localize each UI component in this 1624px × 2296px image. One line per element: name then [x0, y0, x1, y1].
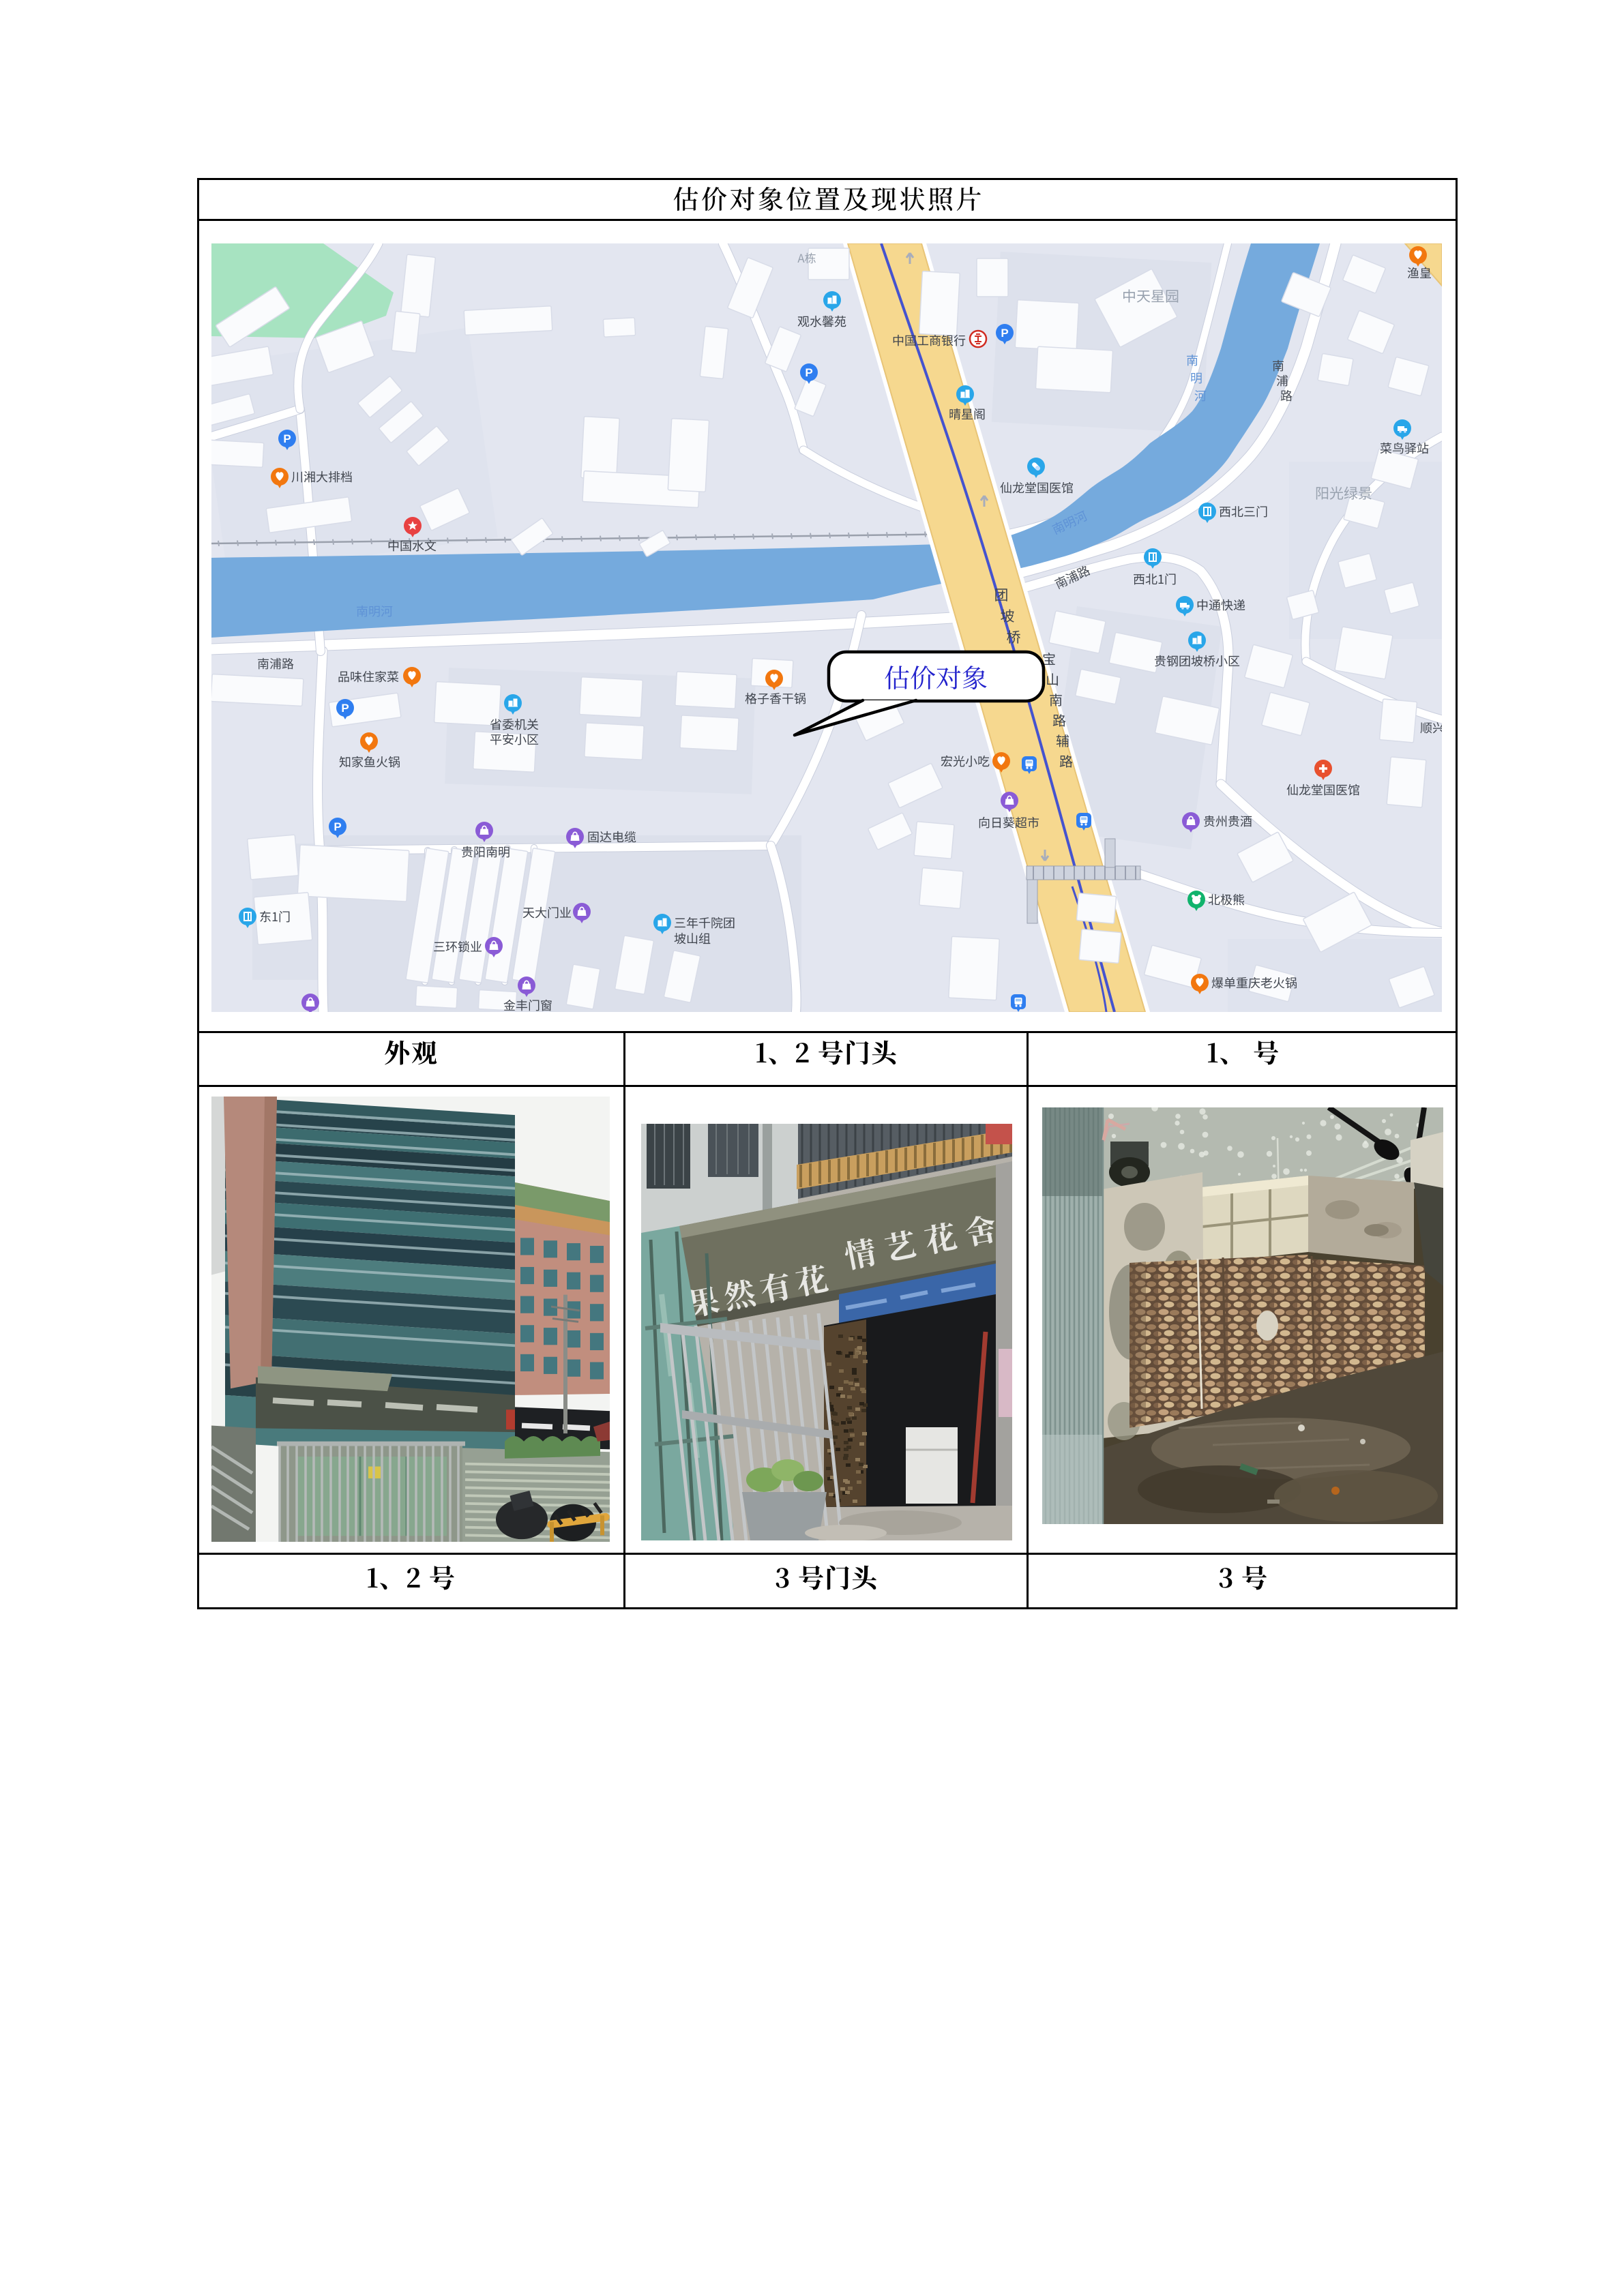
svg-text:P: P [334, 820, 341, 833]
svg-text:P: P [283, 432, 291, 445]
svg-text:P: P [1001, 327, 1008, 340]
svg-text:P: P [341, 702, 349, 715]
svg-text:P: P [805, 366, 812, 379]
